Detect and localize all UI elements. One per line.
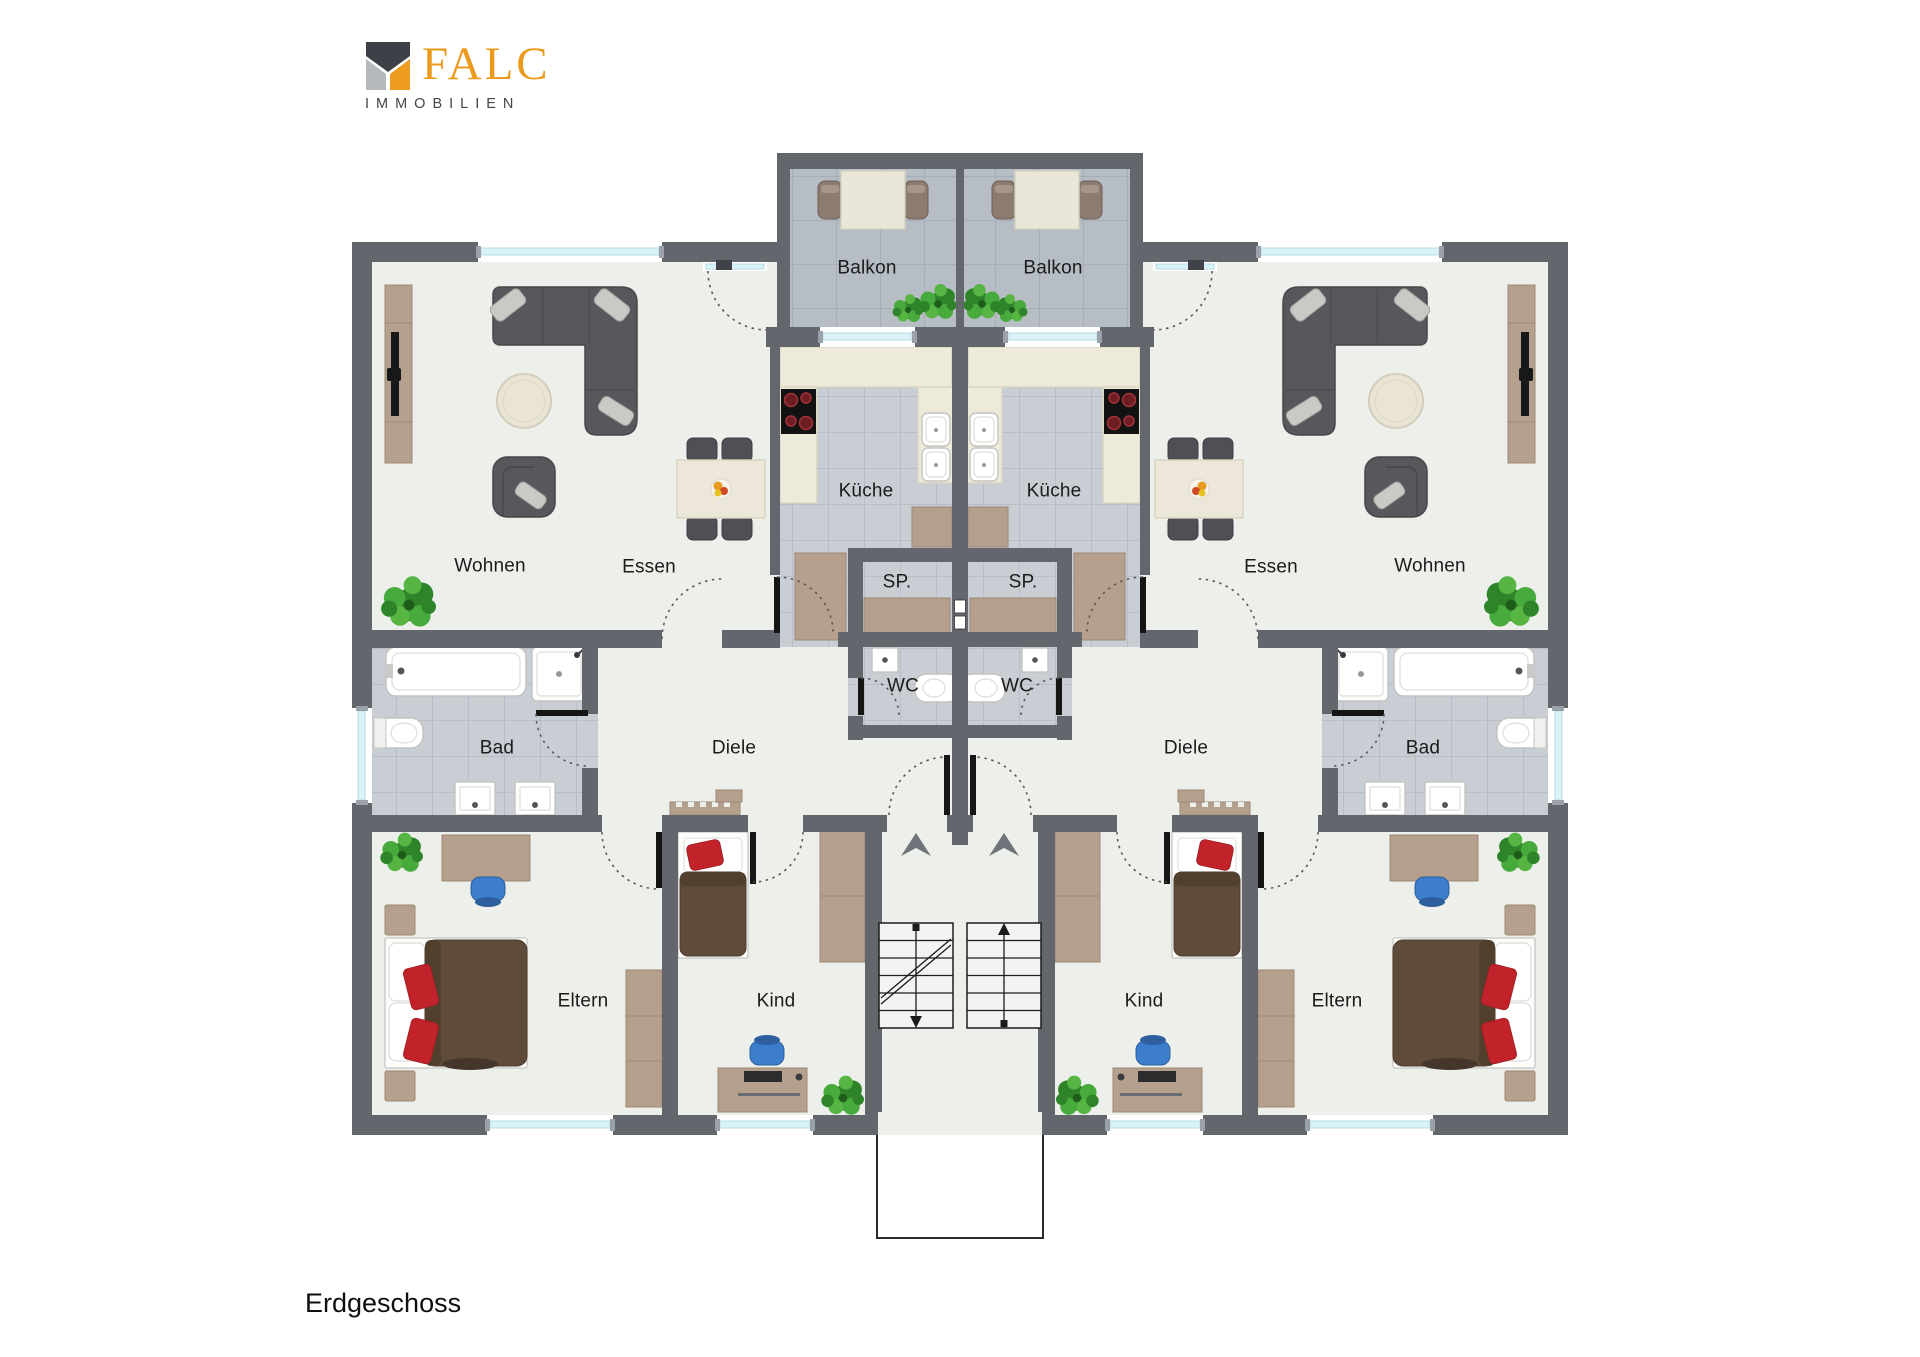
room-label-kind-left: Kind (757, 992, 796, 1011)
room-label-eltern-left: Eltern (558, 992, 609, 1011)
room-label-diele-right: Diele (1164, 739, 1208, 758)
floorplan-page: FALC IMMOBILIEN (0, 0, 1920, 1357)
room-label-kind-right: Kind (1125, 992, 1164, 1011)
apartment-right (960, 153, 1568, 1135)
room-label-sp-right: SP. (1009, 573, 1038, 592)
shaft (955, 616, 966, 629)
room-label-wc-right: WC (1001, 677, 1033, 696)
room-label-wc-left: WC (887, 677, 919, 696)
room-label-balkon-left: Balkon (837, 259, 896, 278)
shaft (955, 600, 966, 613)
room-label-kueche-left: Küche (839, 482, 894, 501)
room-label-balkon-right: Balkon (1023, 259, 1082, 278)
stair-exit (878, 1112, 1042, 1135)
balcony-divider (956, 169, 964, 327)
room-label-bad-left: Bad (480, 739, 514, 758)
room-label-wohnen-left: Wohnen (454, 557, 526, 576)
room-label-kueche-right: Küche (1027, 482, 1082, 501)
room-label-essen-right: Essen (1244, 558, 1298, 577)
floor-caption: Erdgeschoss (305, 1287, 461, 1319)
room-label-essen-left: Essen (622, 558, 676, 577)
room-label-diele-left: Diele (712, 739, 756, 758)
room-label-eltern-right: Eltern (1312, 992, 1363, 1011)
floorplan-drawing (0, 0, 1920, 1357)
room-label-wohnen-right: Wohnen (1394, 557, 1466, 576)
room-label-sp-left: SP. (883, 573, 912, 592)
party-wall (952, 345, 968, 845)
entrance-porch (877, 1135, 1043, 1238)
apartment-left (352, 153, 960, 1135)
room-label-bad-right: Bad (1406, 739, 1440, 758)
